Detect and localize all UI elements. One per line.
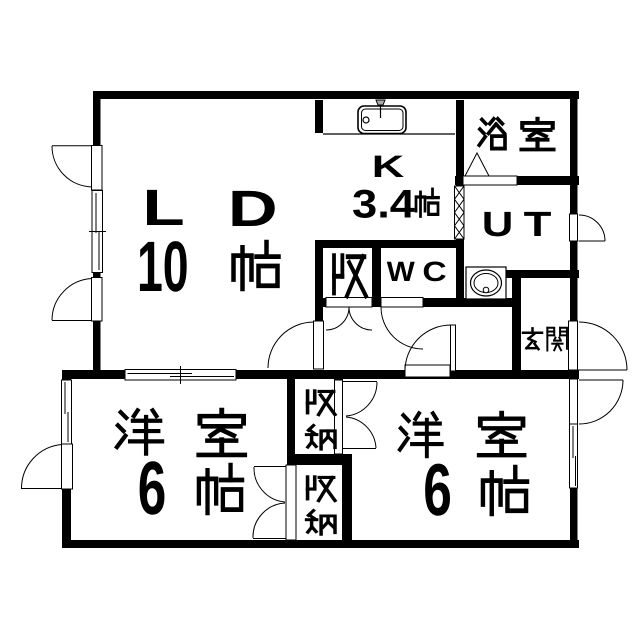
- svg-text:K: K: [372, 149, 405, 184]
- svg-text:T: T: [524, 205, 552, 244]
- svg-text:U: U: [482, 205, 514, 244]
- svg-text:W: W: [387, 256, 416, 287]
- svg-text:10: 10: [137, 227, 189, 307]
- svg-text:D: D: [228, 180, 278, 237]
- svg-text:6: 6: [423, 448, 452, 531]
- svg-text:6: 6: [138, 446, 167, 530]
- svg-text:C: C: [422, 256, 446, 287]
- svg-text:3.4: 3.4: [352, 183, 416, 227]
